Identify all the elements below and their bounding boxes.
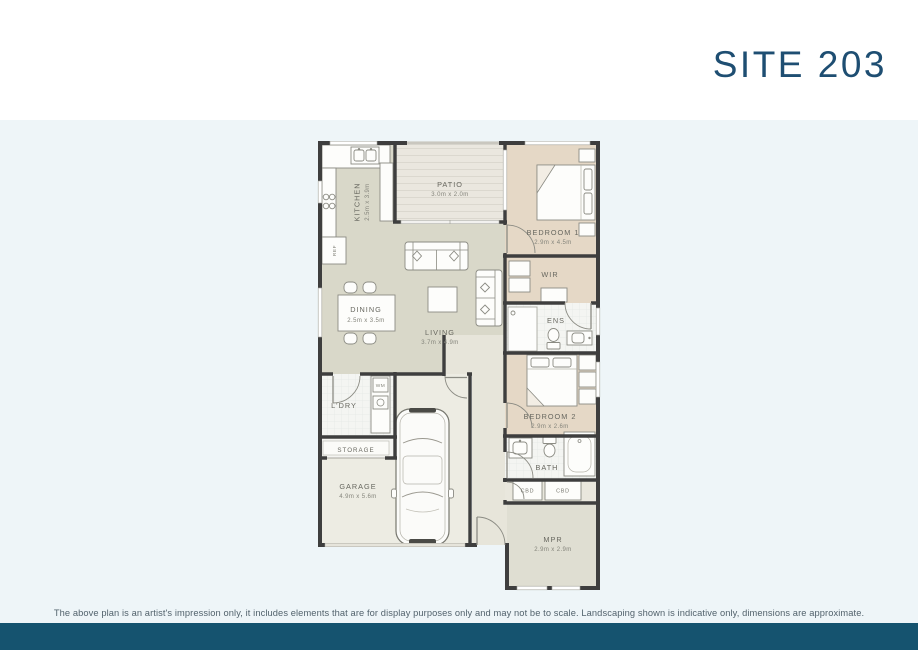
vanity-icon	[567, 331, 592, 345]
window	[318, 181, 322, 203]
kitchen-dims: 2.5m x 3.9m	[365, 183, 371, 220]
bedroom1-label: BEDROOM 1	[527, 228, 580, 237]
window	[503, 150, 507, 210]
living-dims: 3.7m x 4.9m	[421, 340, 458, 346]
storage-label: STORAGE	[337, 447, 374, 454]
kitchen-counter-left	[322, 168, 336, 237]
ldry-label: L'DRY	[331, 401, 357, 410]
window	[525, 141, 590, 145]
patio-dims: 3.0m x 2.0m	[431, 192, 468, 198]
wir-label: WIR	[541, 270, 558, 279]
car-mirror	[449, 489, 454, 498]
kitchen-cabinet-right	[380, 163, 393, 221]
shower-icon	[508, 307, 537, 351]
window	[596, 362, 600, 397]
vanity-icon	[509, 438, 532, 458]
wardrobe-shelf	[541, 288, 567, 302]
wardrobe-shelf	[579, 355, 596, 370]
sliding-door	[401, 220, 499, 223]
living-label: LIVING	[425, 328, 455, 337]
wm-label: WM	[376, 383, 386, 389]
cbd-fixtures: CBD CBD	[513, 481, 581, 500]
laundry-fixtures: WM	[371, 376, 390, 433]
mpr-floor	[507, 503, 598, 588]
sofa2-icon	[476, 270, 502, 326]
toilet-icon	[547, 329, 560, 350]
bedroom2-label: BEDROOM 2	[524, 412, 577, 421]
mpr-dims: 2.9m x 2.9m	[534, 547, 571, 553]
bedside-table	[579, 223, 595, 236]
wardrobe-shelf	[579, 389, 596, 404]
fridge-icon: REF	[322, 237, 346, 264]
bathtub-icon	[564, 432, 595, 476]
bedroom2-furniture	[527, 355, 596, 406]
dining-chair	[344, 333, 357, 344]
garage-door	[325, 543, 465, 546]
window	[552, 586, 580, 590]
wardrobe-shelf	[509, 261, 530, 276]
dining-label: DINING	[350, 305, 382, 314]
car-mirror	[392, 489, 397, 498]
bed-icon	[527, 355, 577, 406]
window	[596, 308, 600, 335]
bed-icon	[537, 165, 595, 220]
window	[517, 586, 547, 590]
window	[330, 141, 377, 145]
bedside-table	[579, 149, 595, 162]
wardrobe-shelf	[579, 372, 596, 387]
patio-label: PATIO	[437, 180, 463, 189]
patio-screen	[407, 141, 499, 144]
ref-label: REF	[332, 245, 338, 256]
bedroom1-dims: 2.9m x 4.5m	[534, 240, 571, 246]
dining-chair	[363, 282, 376, 293]
garage-label: GARAGE	[339, 482, 376, 491]
window	[318, 288, 322, 337]
sofa-icon	[405, 242, 468, 270]
dining-chair	[363, 333, 376, 344]
ens-label: ENS	[547, 316, 565, 325]
kitchen-label: KITCHEN	[353, 182, 362, 221]
footer-bar	[0, 623, 918, 650]
bath-label: BATH	[536, 463, 559, 472]
mpr-label: MPR	[543, 535, 562, 544]
disclaimer-text: The above plan is an artist's impression…	[0, 608, 918, 618]
page-title: SITE 203	[713, 44, 887, 86]
dining-chair	[344, 282, 357, 293]
cbd2-label: CBD	[556, 489, 570, 495]
floor-plan: REF	[313, 141, 603, 596]
sink-icon	[351, 147, 379, 164]
wardrobe-shelf	[509, 278, 530, 292]
car-icon	[392, 408, 454, 545]
bedroom2-dims: 2.9m x 2.6m	[531, 424, 568, 430]
dining-dims: 2.5m x 3.5m	[347, 318, 384, 324]
coffee-table-icon	[428, 287, 457, 312]
toilet-icon	[543, 437, 556, 457]
laundry-tub-icon	[373, 396, 388, 409]
garage-dims: 4.9m x 5.6m	[339, 494, 376, 500]
washing-machine-icon: WM	[373, 378, 388, 392]
